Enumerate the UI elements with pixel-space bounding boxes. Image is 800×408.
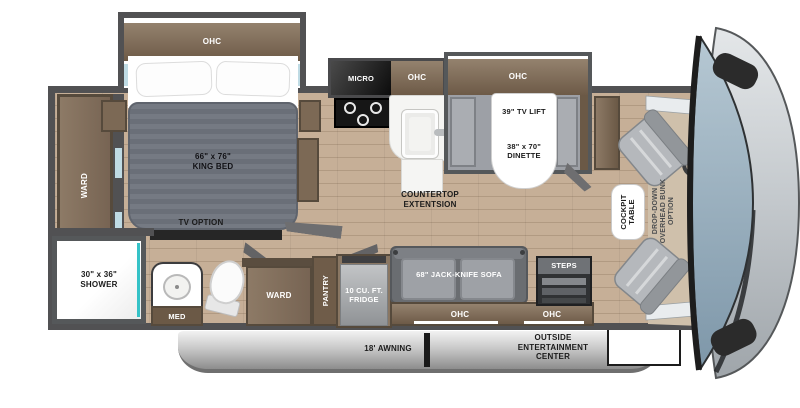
ward-bottom-label: WARD — [266, 291, 291, 301]
med-label: MED — [168, 312, 185, 321]
sink-icon — [163, 274, 191, 300]
tv-option-cabinet — [150, 230, 282, 240]
fridge-vent — [342, 256, 386, 263]
steps-label: STEPS — [538, 261, 590, 270]
entry-platform — [607, 328, 681, 366]
nightstand — [101, 100, 127, 132]
kitchen-ohc-label: OHC — [408, 73, 426, 83]
countertop-extension-label: COUNTERTOP EXTENTSION — [352, 190, 508, 209]
countertop-extension-box — [402, 160, 442, 192]
bottom-wall-extension — [648, 323, 704, 330]
window-icon — [115, 148, 122, 178]
bed-ohc-label: OHC — [203, 37, 221, 47]
kitchen-sink-icon — [402, 110, 438, 158]
vanity-sink — [151, 262, 203, 308]
dinette-ohc-cabinet: OHC — [448, 59, 588, 95]
stove-icon — [334, 98, 392, 128]
nightstand — [299, 100, 321, 132]
outside-entertainment-label: OUTSIDE ENTERTAINMENT CENTER — [478, 333, 628, 362]
cockpit-table: COCKPIT TABLE — [612, 185, 644, 239]
shower-glass — [137, 243, 140, 317]
king-bed-mattress: 66" x 76" KING BED — [128, 102, 298, 230]
rv-floorplan: 18' AWNING OUTSIDE ENTERTAINMENT CENTER … — [0, 0, 800, 408]
pantry-cabinet: PANTRY — [312, 256, 338, 326]
nose-trim — [716, 210, 753, 372]
med-cabinet: MED — [151, 306, 203, 326]
pillow — [135, 61, 212, 98]
sofa-label: 68" JACK-KNIFE SOFA — [392, 270, 526, 279]
side-mirror-icon — [707, 315, 760, 359]
pantry-label: PANTRY — [321, 275, 330, 306]
fridge-label: 10 CU. FT. FRIDGE — [345, 286, 383, 304]
entry-steps: STEPS — [536, 256, 592, 306]
awning-divider — [424, 333, 430, 367]
dinette-bench — [556, 97, 578, 167]
shower-label: 30" x 36" SHOWER — [80, 270, 117, 289]
sofa-ohc-label: OHC — [430, 310, 490, 320]
micro-label: MICRO — [348, 74, 374, 83]
sofa-cushion — [460, 258, 515, 300]
kitchen-ohc-cabinet: OHC — [391, 61, 443, 95]
awning-label: 18' AWNING — [323, 344, 453, 354]
overhead-bunk-label: DROP-DOWN OVERHEAD BUNK OPTION — [652, 179, 676, 243]
entry-ohc-label: OHC — [522, 310, 582, 320]
bedroom-dresser — [297, 138, 319, 202]
bed-ohc-cabinet: OHC — [124, 21, 300, 61]
ward-bottom-cabinet: WARD — [246, 266, 312, 326]
dinette-ohc-label: OHC — [509, 72, 527, 82]
dinette-table: 39" TV LIFT 38" x 70" DINETTE — [492, 94, 556, 188]
cab-nose — [705, 28, 799, 378]
dinette-label: 38" x 70" DINETTE — [492, 142, 556, 160]
fridge: 10 CU. FT. FRIDGE — [340, 264, 388, 326]
dinette-bench — [450, 97, 476, 167]
shower: 30" x 36" SHOWER — [52, 236, 146, 324]
king-bed-label: 66" x 76" KING BED — [130, 152, 296, 171]
jack-knife-sofa: 68" JACK-KNIFE SOFA — [390, 246, 528, 304]
side-mirror-icon — [709, 49, 762, 93]
pillow — [215, 61, 290, 98]
tv-option-label: TV OPTION — [146, 218, 256, 228]
ward-rear-label: WARD — [80, 173, 90, 198]
bath-wall — [48, 228, 154, 236]
microwave-cabinet: MICRO — [331, 61, 391, 95]
cockpit-table-label: COCKPIT TABLE — [620, 194, 637, 229]
galley-cabinet — [594, 96, 620, 170]
sofa-cushion — [401, 258, 456, 300]
top-wall-extension — [648, 86, 704, 93]
kitchen-slideout: MICRO OHC — [328, 58, 446, 98]
dinette-side-cabinet — [580, 95, 588, 170]
tv-lift-label: 39" TV LIFT — [492, 107, 556, 116]
overhead-bunk-option: DROP-DOWN OVERHEAD BUNK OPTION — [649, 169, 679, 253]
awning-bar: 18' AWNING OUTSIDE ENTERTAINMENT CENTER — [178, 331, 660, 373]
